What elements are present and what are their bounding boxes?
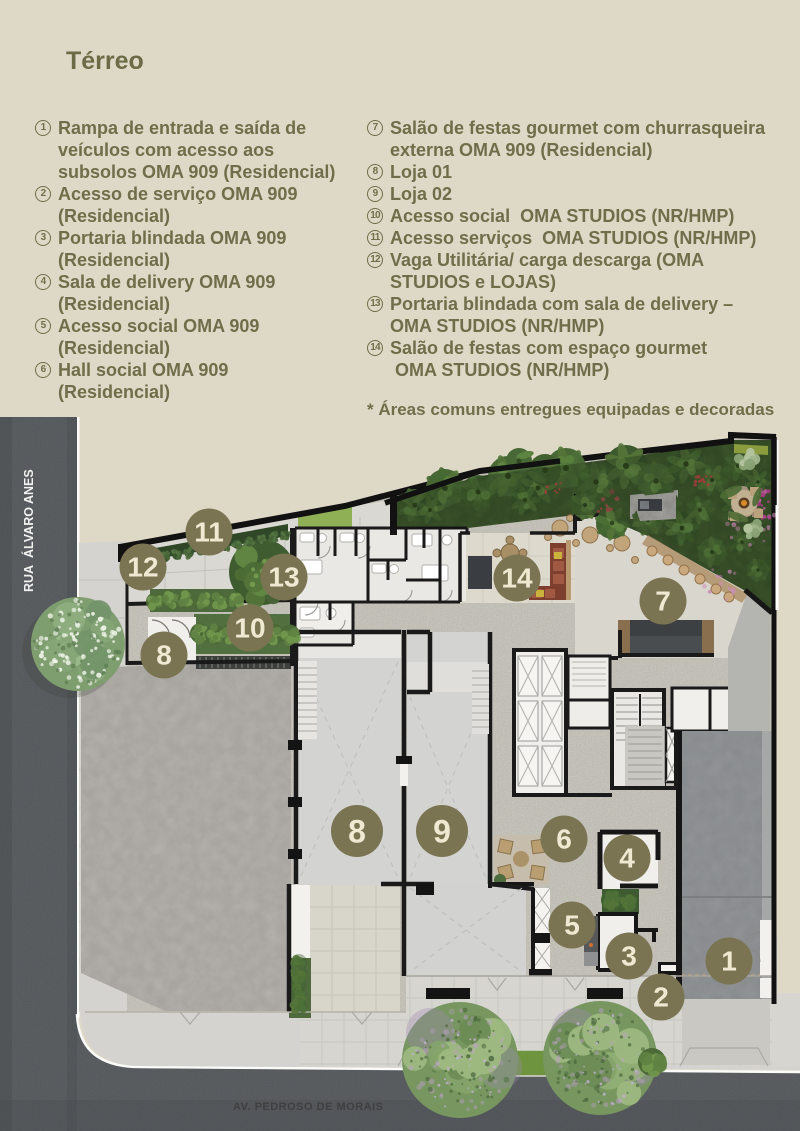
- svg-text:RUA ÁLVARO ANES: RUA ÁLVARO ANES: [21, 469, 36, 592]
- svg-text:3: 3: [621, 941, 637, 972]
- svg-text:10: 10: [234, 613, 265, 644]
- svg-text:4: 4: [619, 843, 635, 874]
- svg-text:14: 14: [501, 563, 533, 594]
- svg-text:12: 12: [127, 552, 158, 583]
- svg-text:2: 2: [653, 982, 669, 1013]
- svg-text:AV. PEDROSO DE MORAIS: AV. PEDROSO DE MORAIS: [233, 1101, 383, 1113]
- svg-text:11: 11: [194, 517, 224, 548]
- svg-text:8: 8: [348, 814, 366, 850]
- svg-text:7: 7: [655, 586, 671, 617]
- svg-text:13: 13: [268, 562, 299, 593]
- svg-text:9: 9: [433, 814, 451, 850]
- svg-text:8: 8: [156, 640, 172, 671]
- svg-text:5: 5: [564, 910, 580, 941]
- svg-text:1: 1: [721, 946, 737, 977]
- svg-text:6: 6: [556, 824, 572, 855]
